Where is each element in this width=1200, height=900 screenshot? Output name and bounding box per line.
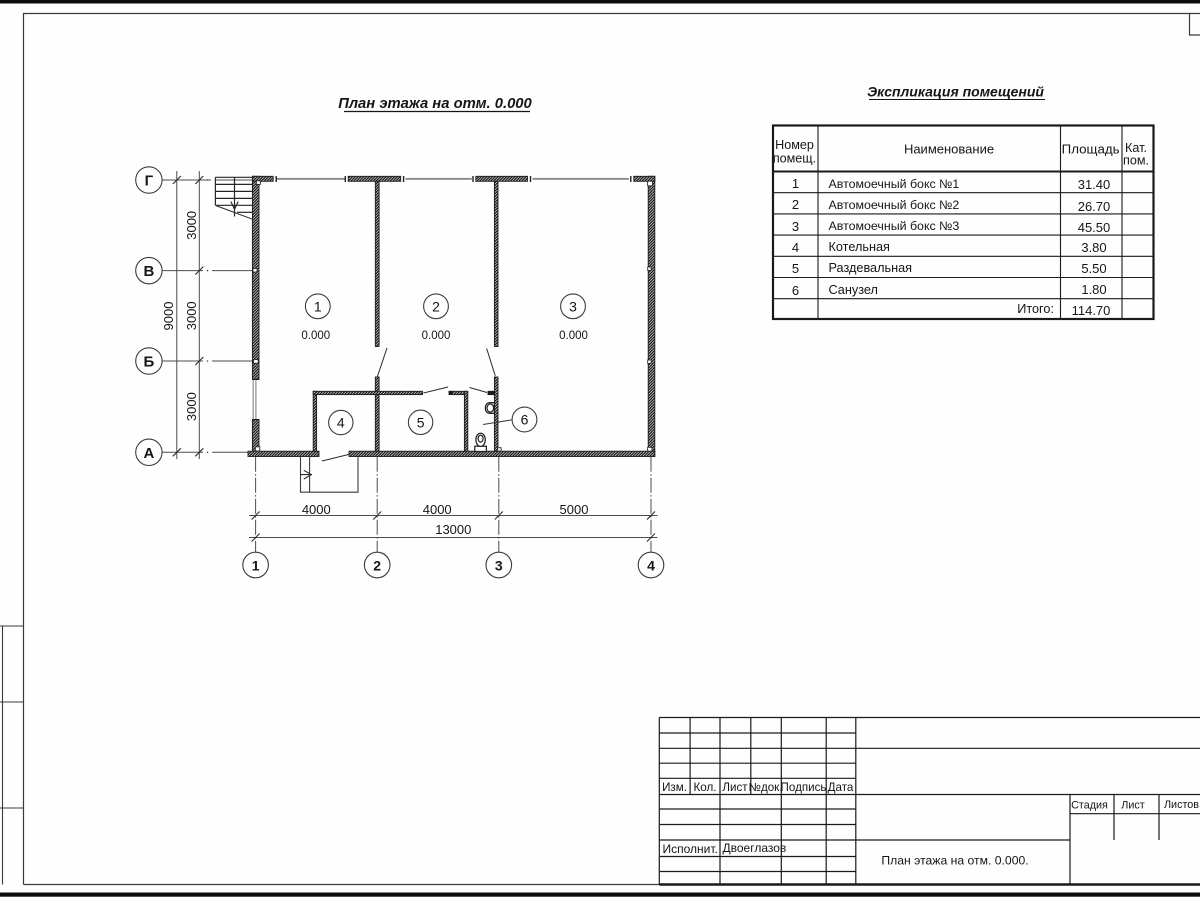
svg-text:1: 1	[792, 176, 799, 191]
svg-text:5.50: 5.50	[1081, 261, 1106, 276]
svg-text:Листов: Листов	[1164, 799, 1199, 811]
svg-text:Двоеглазов: Двоеглазов	[723, 841, 787, 855]
svg-text:Исполнит.: Исполнит.	[663, 842, 718, 856]
svg-text:Итого:: Итого:	[1017, 302, 1054, 316]
svg-text:План этажа на отм. 0.000: План этажа на отм. 0.000	[338, 96, 532, 112]
svg-text:№док.: №док.	[749, 781, 783, 794]
svg-text:0.000: 0.000	[301, 330, 330, 342]
svg-text:1.80: 1.80	[1081, 282, 1106, 297]
svg-text:1: 1	[252, 558, 260, 574]
svg-text:4000: 4000	[423, 502, 452, 517]
svg-text:0.000: 0.000	[422, 330, 451, 342]
svg-text:Стадия: Стадия	[1071, 800, 1108, 812]
svg-text:3: 3	[569, 299, 577, 315]
svg-text:6: 6	[792, 283, 799, 298]
svg-text:Экспликация помещений: Экспликация помещений	[867, 84, 1044, 100]
svg-text:Номер: Номер	[775, 138, 814, 152]
svg-text:3000: 3000	[184, 392, 199, 421]
svg-text:9000: 9000	[161, 302, 176, 331]
svg-text:Кол.: Кол.	[694, 781, 717, 794]
svg-text:3.80: 3.80	[1081, 240, 1106, 255]
svg-text:Г: Г	[145, 173, 154, 190]
svg-text:Площадь: Площадь	[1062, 142, 1120, 157]
svg-text:В: В	[143, 263, 154, 280]
svg-text:3: 3	[495, 558, 503, 574]
svg-text:Санузел: Санузел	[829, 283, 878, 297]
svg-text:4: 4	[647, 558, 655, 574]
svg-text:31.40: 31.40	[1078, 177, 1111, 192]
svg-text:6: 6	[521, 412, 529, 428]
svg-text:2: 2	[373, 558, 381, 574]
svg-text:5000: 5000	[560, 502, 589, 517]
svg-text:А: А	[143, 445, 154, 462]
svg-text:Изм.: Изм.	[662, 781, 687, 794]
svg-text:4: 4	[337, 415, 345, 431]
svg-text:3000: 3000	[184, 211, 199, 240]
svg-text:Автомоечный бокс №3: Автомоечный бокс №3	[829, 219, 960, 233]
svg-text:5: 5	[417, 415, 425, 431]
svg-text:3000: 3000	[184, 301, 199, 330]
svg-text:45.50: 45.50	[1078, 220, 1111, 235]
svg-text:Лист: Лист	[1121, 800, 1145, 812]
svg-text:26.70: 26.70	[1078, 199, 1111, 214]
svg-text:4: 4	[792, 240, 799, 255]
svg-text:4000: 4000	[302, 502, 331, 517]
svg-text:Автомоечный бокс №1: Автомоечный бокс №1	[829, 177, 960, 191]
svg-text:13000: 13000	[435, 522, 471, 537]
svg-text:0.000: 0.000	[559, 330, 588, 342]
svg-text:помещ.: помещ.	[773, 152, 816, 166]
svg-text:1: 1	[314, 299, 322, 315]
svg-text:114.70: 114.70	[1072, 303, 1111, 318]
svg-text:пом.: пом.	[1123, 154, 1149, 168]
svg-text:Лист: Лист	[722, 781, 748, 794]
svg-text:Наименование: Наименование	[904, 142, 994, 157]
svg-text:Раздевальная: Раздевальная	[829, 261, 913, 275]
svg-text:3: 3	[792, 219, 799, 234]
svg-text:Б: Б	[144, 354, 155, 371]
svg-text:Котельная: Котельная	[829, 240, 890, 254]
svg-text:Дата: Дата	[828, 781, 854, 794]
svg-text:Автомоечный бокс №2: Автомоечный бокс №2	[829, 198, 960, 212]
svg-text:5: 5	[792, 261, 799, 276]
svg-text:2: 2	[432, 299, 440, 315]
svg-text:Подпись: Подпись	[781, 781, 827, 794]
svg-text:2: 2	[792, 197, 799, 212]
svg-text:План этажа на отм. 0.000.: План этажа на отм. 0.000.	[881, 854, 1028, 868]
